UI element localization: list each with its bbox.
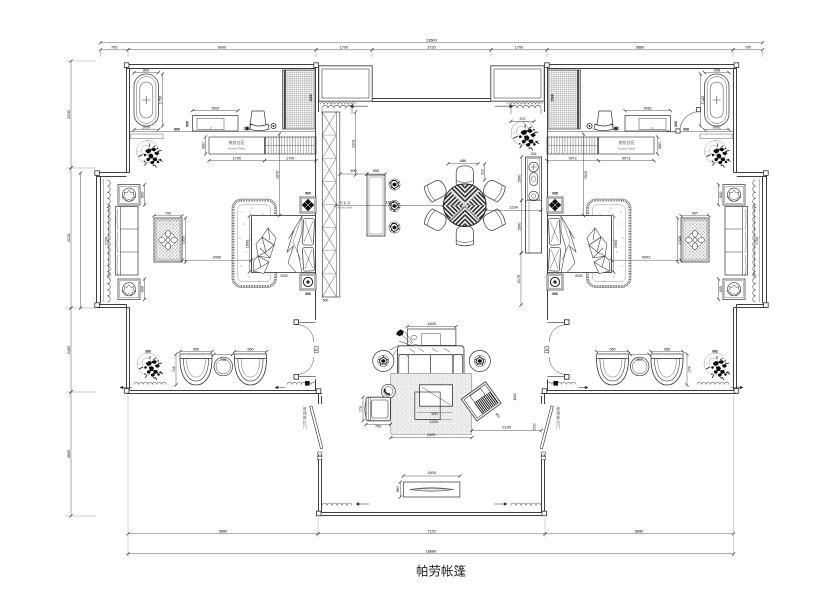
svg-text:950: 950: [664, 347, 670, 351]
svg-text:1670: 1670: [584, 171, 588, 179]
svg-text:1050: 1050: [678, 236, 682, 244]
svg-text:梳妆台区: 梳妆台区: [619, 139, 635, 145]
svg-text:2000: 2000: [575, 274, 583, 278]
svg-text:1700: 1700: [569, 156, 577, 160]
svg-text:600: 600: [174, 128, 180, 132]
svg-text:1670: 1670: [276, 171, 280, 179]
svg-text:1700: 1700: [286, 156, 294, 160]
svg-text:500: 500: [674, 121, 678, 127]
svg-text:2400: 2400: [642, 255, 650, 259]
svg-text:1700: 1700: [233, 156, 241, 160]
svg-text:玻璃推拉门: 玻璃推拉门: [303, 406, 307, 429]
svg-text:1234: 1234: [509, 206, 517, 210]
svg-text:2190: 2190: [502, 426, 510, 430]
svg-text:Accent Table: Accent Table: [228, 147, 245, 151]
svg-text:500: 500: [431, 412, 437, 416]
svg-text:2100: 2100: [755, 237, 759, 245]
svg-text:1050: 1050: [181, 236, 185, 244]
svg-text:700: 700: [111, 46, 117, 50]
svg-text:1750: 1750: [701, 96, 705, 104]
svg-text:1200: 1200: [309, 94, 313, 102]
svg-text:玻璃推拉门: 玻璃推拉门: [556, 406, 560, 429]
svg-text:1800: 1800: [614, 240, 618, 248]
svg-text:725: 725: [637, 358, 643, 362]
svg-text:486: 486: [460, 159, 466, 163]
svg-text:6000: 6000: [218, 46, 226, 50]
svg-text:770: 770: [359, 406, 363, 412]
svg-text:950: 950: [247, 347, 253, 351]
svg-text:3720: 3720: [427, 46, 435, 50]
svg-text:300: 300: [145, 349, 151, 353]
svg-text:梳妆台区: 梳妆台区: [229, 139, 245, 145]
svg-text:2000: 2000: [280, 274, 288, 278]
svg-text:2400: 2400: [213, 255, 221, 259]
svg-text:300: 300: [552, 292, 558, 296]
svg-text:7120: 7120: [427, 530, 435, 534]
svg-text:5880: 5880: [635, 530, 643, 534]
svg-text:1814: 1814: [386, 201, 394, 205]
svg-text:5880: 5880: [636, 46, 644, 50]
svg-text:2100: 2100: [105, 237, 109, 245]
svg-text:500: 500: [323, 299, 329, 303]
svg-text:2200: 2200: [67, 110, 71, 118]
svg-text:5880: 5880: [219, 530, 227, 534]
svg-text:1500: 1500: [518, 223, 522, 231]
svg-text:1000: 1000: [513, 393, 517, 400]
svg-text:2179: 2179: [517, 275, 521, 283]
svg-text:1800: 1800: [245, 240, 249, 248]
svg-text:700: 700: [745, 46, 751, 50]
svg-text:18880: 18880: [426, 550, 437, 554]
svg-text:300: 300: [712, 349, 718, 353]
svg-text:1500: 1500: [427, 322, 435, 326]
svg-text:550: 550: [373, 169, 379, 173]
svg-text:2400: 2400: [427, 433, 435, 437]
svg-text:4220: 4220: [67, 234, 71, 242]
svg-text:600: 600: [719, 286, 723, 292]
svg-text:1200: 1200: [550, 94, 554, 102]
svg-text:800: 800: [143, 68, 149, 72]
svg-text:1000: 1000: [713, 126, 721, 130]
svg-text:600: 600: [719, 192, 723, 198]
svg-text:500: 500: [552, 192, 558, 196]
svg-text:900: 900: [350, 169, 356, 173]
svg-text:1500: 1500: [211, 106, 219, 110]
svg-text:Accent Table: Accent Table: [338, 206, 353, 210]
svg-text:1700: 1700: [515, 46, 523, 50]
svg-text:500: 500: [531, 152, 537, 156]
svg-text:600: 600: [683, 128, 689, 132]
svg-text:23600: 23600: [426, 39, 437, 43]
svg-text:1750: 1750: [158, 96, 162, 104]
svg-text:600: 600: [140, 192, 144, 198]
svg-text:1700: 1700: [340, 46, 348, 50]
svg-text:800: 800: [201, 142, 205, 148]
svg-text:800: 800: [658, 142, 662, 148]
svg-text:帕劳帐篷: 帕劳帐篷: [416, 564, 467, 579]
svg-text:3600: 3600: [67, 450, 71, 458]
svg-text:2201: 2201: [352, 139, 356, 147]
svg-text:725: 725: [220, 358, 226, 362]
svg-text:700: 700: [692, 212, 698, 216]
svg-text:312: 312: [481, 169, 485, 175]
svg-text:718: 718: [172, 366, 176, 372]
svg-text:950: 950: [609, 347, 615, 351]
svg-text:Accent Table: Accent Table: [618, 147, 635, 151]
svg-text:1000: 1000: [142, 126, 150, 130]
svg-text:750: 750: [375, 424, 381, 428]
svg-text:1800: 1800: [427, 471, 435, 475]
svg-text:718: 718: [687, 366, 691, 372]
svg-text:500: 500: [186, 121, 190, 127]
svg-text:950: 950: [193, 347, 199, 351]
svg-text:1700: 1700: [622, 156, 630, 160]
svg-text:600: 600: [140, 286, 144, 292]
svg-text:372: 372: [519, 117, 525, 121]
svg-text:700: 700: [165, 212, 171, 216]
svg-text:300: 300: [305, 292, 311, 296]
svg-text:800: 800: [714, 68, 720, 72]
svg-text:500: 500: [305, 192, 311, 196]
svg-text:1500: 1500: [533, 423, 537, 430]
svg-text:2400: 2400: [67, 346, 71, 354]
svg-text:350: 350: [396, 486, 400, 492]
svg-text:1500: 1500: [644, 106, 652, 110]
svg-text:1500: 1500: [518, 175, 522, 183]
svg-text:吧 台 区: 吧 台 区: [339, 200, 351, 205]
svg-text:1200: 1200: [429, 420, 437, 424]
